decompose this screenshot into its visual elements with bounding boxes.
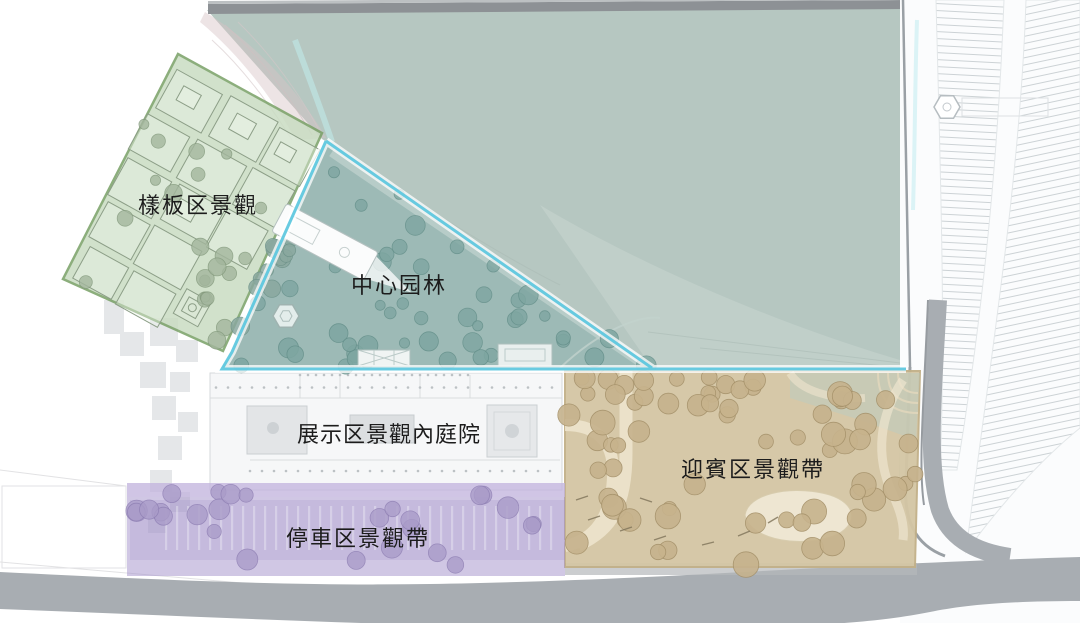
pavilion-hexagon-icon: [934, 96, 960, 119]
lattice-bridge: [358, 350, 410, 366]
label-central-garden: 中心园林: [351, 274, 447, 298]
garden-hex-pavilion: [273, 305, 299, 328]
site-plan-canvas: [0, 0, 1080, 623]
east-road-corridor: [900, 0, 1080, 623]
label-exhibition-courtyard: 展示区景觀內庭院: [297, 423, 481, 447]
label-parking-belt: 停車区景觀帶: [286, 527, 430, 551]
label-model-area: 樣板区景觀: [138, 194, 258, 218]
garden-pavilion: [498, 344, 552, 366]
landscape-zoning-plan: 樣板区景觀 中心园林 展示区景觀內庭院 迎賓区景觀帶 停車区景觀帶: [0, 0, 1080, 623]
label-welcome-belt: 迎賓区景觀帶: [681, 458, 825, 482]
